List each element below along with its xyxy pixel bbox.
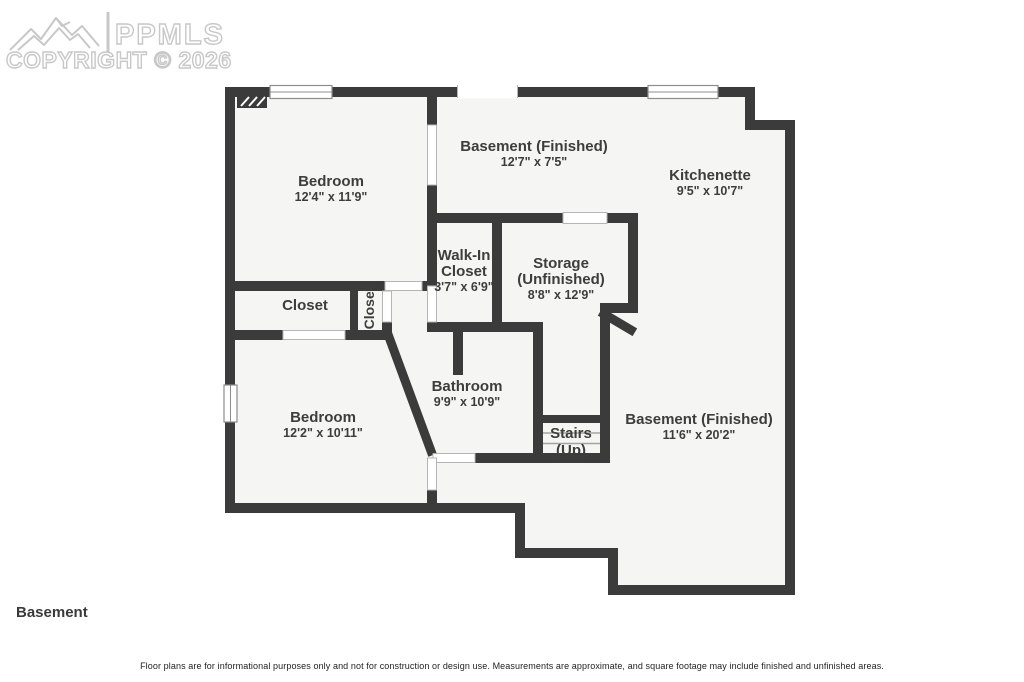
floor-outline [230, 92, 790, 590]
floorplan-page: PPMLS COPYRIGHT © 2026 [0, 0, 1024, 682]
floor-title: Basement [16, 604, 88, 621]
disclaimer-text: Floor plans are for informational purpos… [0, 661, 1024, 671]
floorplan-graphic [0, 0, 1024, 682]
